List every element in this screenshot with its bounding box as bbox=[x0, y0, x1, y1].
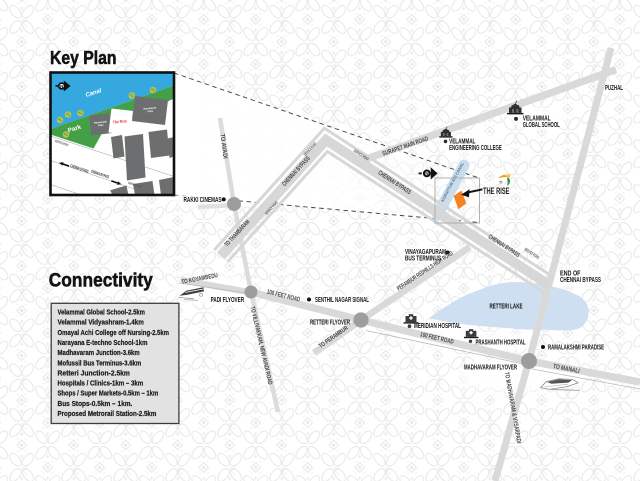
svg-text:Retteri Junction-2.5km: Retteri Junction-2.5km bbox=[58, 368, 131, 377]
svg-text:Proposed Metrorail Station-2.5: Proposed Metrorail Station-2.5km bbox=[58, 409, 157, 418]
svg-text:RETTERI LAKE: RETTERI LAKE bbox=[490, 304, 523, 311]
svg-text:SENTHIL NAGAR SIGNAL: SENTHIL NAGAR SIGNAL bbox=[315, 297, 369, 304]
svg-text:Key Plan: Key Plan bbox=[50, 47, 117, 68]
svg-text:Hospitals / Clinics-1km – 3km: Hospitals / Clinics-1km – 3km bbox=[58, 379, 144, 388]
svg-text:GLOBAL SCHOOL: GLOBAL SCHOOL bbox=[523, 122, 560, 129]
svg-text:Connectivity: Connectivity bbox=[49, 270, 153, 292]
svg-text:Narayana E-techno School-1km: Narayana E-techno School-1km bbox=[58, 338, 148, 347]
svg-text:THE RISE: THE RISE bbox=[483, 186, 510, 196]
svg-text:PADI FLYOVER: PADI FLYOVER bbox=[211, 297, 245, 304]
svg-text:PUZHAL: PUZHAL bbox=[605, 85, 623, 92]
svg-text:Mofussil Bus Terminus-3.6km: Mofussil Bus Terminus-3.6km bbox=[58, 358, 142, 367]
svg-text:RETTERI FLYOVER: RETTERI FLYOVER bbox=[310, 320, 350, 327]
svg-text:N: N bbox=[425, 171, 428, 176]
svg-text:CHENNAI BYPASS: CHENNAI BYPASS bbox=[560, 277, 601, 284]
svg-text:RAMALAKSHMI PARADISE: RAMALAKSHMI PARADISE bbox=[548, 345, 604, 352]
svg-text:Madhavaram Junction-3.6km: Madhavaram Junction-3.6km bbox=[58, 348, 140, 357]
svg-text:Omayal Achi College off Nursin: Omayal Achi College off Nursing-2.5km bbox=[58, 328, 170, 337]
svg-text:MERIDIAN HOSPITAL: MERIDIAN HOSPITAL bbox=[414, 323, 461, 330]
svg-text:Velammal Global School-2.5km: Velammal Global School-2.5km bbox=[58, 308, 146, 317]
svg-text:Shops / Super Markets-0.5km –: Shops / Super Markets-0.5km – 1km bbox=[58, 389, 159, 398]
svg-text:ENGINEERING COLLEGE: ENGINEERING COLLEGE bbox=[449, 145, 502, 152]
svg-text:BUS TERMINUS: BUS TERMINUS bbox=[405, 255, 441, 262]
svg-text:PRASHANTH HOSPITAL: PRASHANTH HOSPITAL bbox=[476, 340, 526, 347]
svg-text:Velammal Vidyashram-1.4km: Velammal Vidyashram-1.4km bbox=[58, 318, 145, 327]
svg-text:RAKKI CINEMAS: RAKKI CINEMAS bbox=[184, 197, 222, 204]
svg-text:Bus Stops-0.5km – 1km.: Bus Stops-0.5km – 1km. bbox=[58, 399, 133, 408]
svg-text:MADHAVARAM FLYOVER: MADHAVARAM FLYOVER bbox=[464, 365, 517, 372]
